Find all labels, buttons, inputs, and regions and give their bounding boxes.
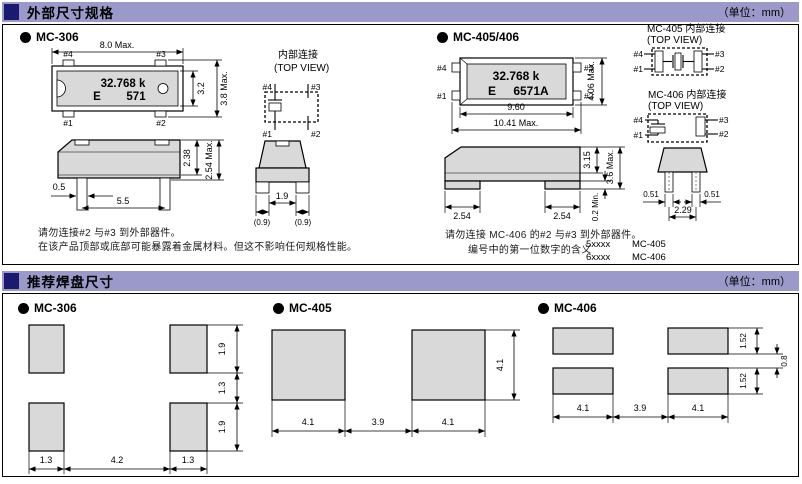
pad-mc406-label-text: MC-406: [554, 301, 597, 315]
part-number-codes: 5xxxx MC-405 6xxxx MC-406: [586, 238, 666, 264]
datasheet-page: 外部尺寸规格 （单位：mm） MC-306 8.0 Max: [0, 0, 802, 484]
mc306-side-geometry: [51, 140, 224, 210]
unit-label: （单位：mm）: [718, 4, 791, 20]
mc306-top-view-drawing: 8.0 Max. #4 #3 #1 #2 32.768 k E 571 3.2 …: [30, 38, 235, 130]
mc405-int-pin3-label: #3: [715, 49, 725, 59]
mc306-int-pin3-label: #3: [311, 82, 321, 92]
mc405-pad-layout-drawing: 4.1 4.1 3.9 4.1: [270, 315, 530, 475]
mc405-406-end-view-drawing: 0.51 0.51 2.29: [640, 145, 798, 240]
pad-mc405-label: MC-405: [273, 301, 332, 315]
mc306-end-view-drawing: 1.9 (0.9) (0.9): [240, 138, 355, 232]
mc405-end-center-dim: 2.29: [674, 205, 692, 215]
mc306-end-gap-dim: 1.9: [276, 191, 289, 201]
mc405-internal-title: MC-405 内部连接: [647, 22, 725, 35]
mc306-note1: 请勿连接#2 与#3 到外部器件。: [38, 224, 181, 239]
mc405-marking-code: 6571A: [513, 84, 549, 98]
mc405-right-pad-dim: 2.54: [553, 211, 571, 221]
mc306-end-right-dim: (0.9): [295, 218, 312, 227]
mc306-pin2-label: #2: [156, 118, 166, 128]
mc405-internal-subtitle: (TOP VIEW): [647, 35, 702, 46]
mc306-width-dim: 8.0 Max.: [100, 40, 135, 50]
mc405-marking-logo: E: [488, 84, 496, 98]
mc405-body-height-dim: 3.15: [582, 151, 592, 169]
mc406-int-pin4-label: #4: [634, 115, 644, 125]
code-prefix-6: 6xxxx: [586, 251, 620, 264]
pad-mc306-label-text: MC-306: [34, 301, 77, 315]
mc306-marking-code: 571: [126, 91, 146, 103]
mc405-height-dim: 4.06 Max.: [586, 61, 596, 101]
mc405-pin1-label: #1: [437, 91, 447, 101]
mc405-int-pin2-label: #2: [715, 64, 725, 74]
pad406-v-dim-gap: 0.8: [780, 355, 789, 367]
pad306-h-dim-right: 1.3: [182, 455, 195, 465]
mc405-int-pin4-label: #4: [634, 49, 644, 59]
mc405-standoff-dim: 0.2 Min.: [591, 193, 600, 221]
mc405-end-right-dim: 0.51: [704, 190, 720, 199]
mc406-internal-geometry: [645, 114, 718, 142]
mc306-pad-layout-drawing: 1.9 1.3 1.9 1.3 4.2 1.3: [15, 315, 255, 475]
mc406-int-pin2-label: #2: [719, 129, 729, 139]
section-marker-icon: [4, 4, 19, 20]
pad-mc405-label-text: MC-405: [289, 301, 332, 315]
pad-mc306-label: MC-306: [18, 301, 77, 315]
mc306-lead-span-dim: 5.5: [117, 196, 130, 206]
section1-title: 外部尺寸规格: [27, 2, 114, 22]
mc405-406-label-text: MC-405/406: [453, 30, 519, 44]
code-row-mc405: 5xxxx MC-405: [586, 238, 666, 251]
mc405-406-top-view-drawing: #4 #1 #3 #2 32.768 k E 6571A 9.60 10.41 …: [435, 50, 635, 145]
mc306-internal-title: 内部连接: [278, 48, 318, 61]
code-prefix-5: 5xxxx: [586, 238, 620, 251]
mc306-marking-logo: E: [93, 91, 101, 103]
pad306-h-dim-gap: 4.2: [111, 455, 124, 465]
code-model-405: MC-405: [632, 238, 666, 251]
mc306-total-height-dim: 2.54 Max.: [204, 140, 214, 180]
pad306-v-dim-bottom: 1.9: [217, 421, 227, 434]
bullet-icon: [538, 303, 549, 314]
mc405-pin4-label: #4: [437, 63, 447, 73]
mc306-internal-connection-diagram: 内部连接 (TOP VIEW) #4 #3 #1 #2: [238, 44, 360, 140]
mc306-int-pin4-label: #4: [263, 82, 273, 92]
pad306-v-dim-gap: 1.3: [217, 382, 227, 395]
section2-title: 推荐焊盘尺寸: [27, 271, 114, 291]
mc306-inner-height-dim: 3.2: [196, 82, 206, 95]
section1-header: 外部尺寸规格 （单位：mm）: [2, 2, 799, 22]
mc306-pin3-label: #3: [156, 49, 166, 59]
code-row-mc406: 6xxxx MC-406: [586, 251, 666, 264]
mc306-end-geometry: [256, 141, 309, 216]
pad306-h-dim-left: 1.3: [40, 455, 53, 465]
pad405-h-dim-left: 4.1: [302, 417, 315, 427]
bullet-icon: [273, 303, 284, 314]
mc306-pin4-label: #4: [63, 49, 73, 59]
mc306-pin1-label: #1: [63, 118, 73, 128]
mc306-pad-geometry: [29, 325, 243, 474]
mc406-internal-connection-diagram: MC-406 内部连接 (TOP VIEW) #4 #1 #3 #2: [630, 88, 798, 150]
pad-mc406-label: MC-406: [538, 301, 597, 315]
mc405-406-label: MC-405/406: [437, 30, 519, 44]
unit-label: （单位：mm）: [718, 273, 791, 289]
pad406-h-dim-right: 4.1: [692, 403, 705, 413]
mc406-pad-layout-drawing: 1.52 0.8 1.52 4.1 3.9 4.1: [535, 315, 800, 475]
section2-header: 推荐焊盘尺寸 （单位：mm）: [2, 271, 799, 291]
section-marker-icon: [4, 273, 19, 289]
pad406-v-dim-bottom: 1.52: [739, 373, 748, 389]
pad405-v-dim: 4.1: [495, 359, 505, 372]
code-model-406: MC-406: [632, 251, 666, 264]
pad405-h-dim-gap: 3.9: [372, 417, 385, 427]
mc306-body-height-dim: 2.38: [182, 149, 192, 167]
mc405-note2: 编号中的第一位数字的含义: [468, 241, 592, 256]
pad405-h-dim-right: 4.1: [442, 417, 455, 427]
mc405-internal-geometry: [644, 48, 714, 75]
bullet-icon: [437, 32, 448, 43]
mc306-side-view-drawing: 0.5 5.5 2.38 2.54 Max.: [35, 138, 235, 232]
pad406-h-dim-left: 4.1: [577, 403, 590, 413]
mc306-marking-line1: 32.768 k: [101, 78, 146, 90]
pad306-v-dim-top: 1.9: [217, 343, 227, 356]
mc405-left-pad-dim: 2.54: [453, 211, 471, 221]
mc405-body-width-dim: 9.60: [507, 102, 525, 112]
mc405-internal-connection-diagram: MC-405 内部连接 (TOP VIEW) #4 #1 #3 #2: [630, 22, 798, 86]
pad406-h-dim-gap: 3.9: [634, 403, 647, 413]
mc306-end-left-dim: (0.9): [254, 218, 271, 227]
mc405-total-height-dim: 3.6 Max.: [605, 150, 615, 185]
mc405-marking-line1: 32.768 k: [493, 69, 540, 83]
mc405-int-pin1-label: #1: [634, 64, 644, 74]
mc306-internal-subtitle: (TOP VIEW): [274, 63, 329, 74]
mc306-lead-width-dim: 0.5: [53, 182, 66, 192]
mc406-int-pin1-label: #1: [634, 130, 644, 140]
mc306-outer-height-dim: 3.8 Max.: [219, 71, 229, 106]
mc406-internal-title: MC-406 内部连接: [648, 88, 726, 101]
pad406-v-dim-top: 1.52: [739, 333, 748, 349]
mc406-internal-subtitle: (TOP VIEW): [648, 101, 703, 112]
mc405-end-left-dim: 0.51: [643, 190, 659, 199]
mc405-total-width-dim: 10.41 Max.: [494, 118, 539, 128]
mc406-int-pin3-label: #3: [719, 115, 729, 125]
mc306-note2: 在该产品顶部或底部可能暴露着金属材料。但这不影响任何规格性能。: [38, 238, 357, 253]
bullet-icon: [18, 303, 29, 314]
